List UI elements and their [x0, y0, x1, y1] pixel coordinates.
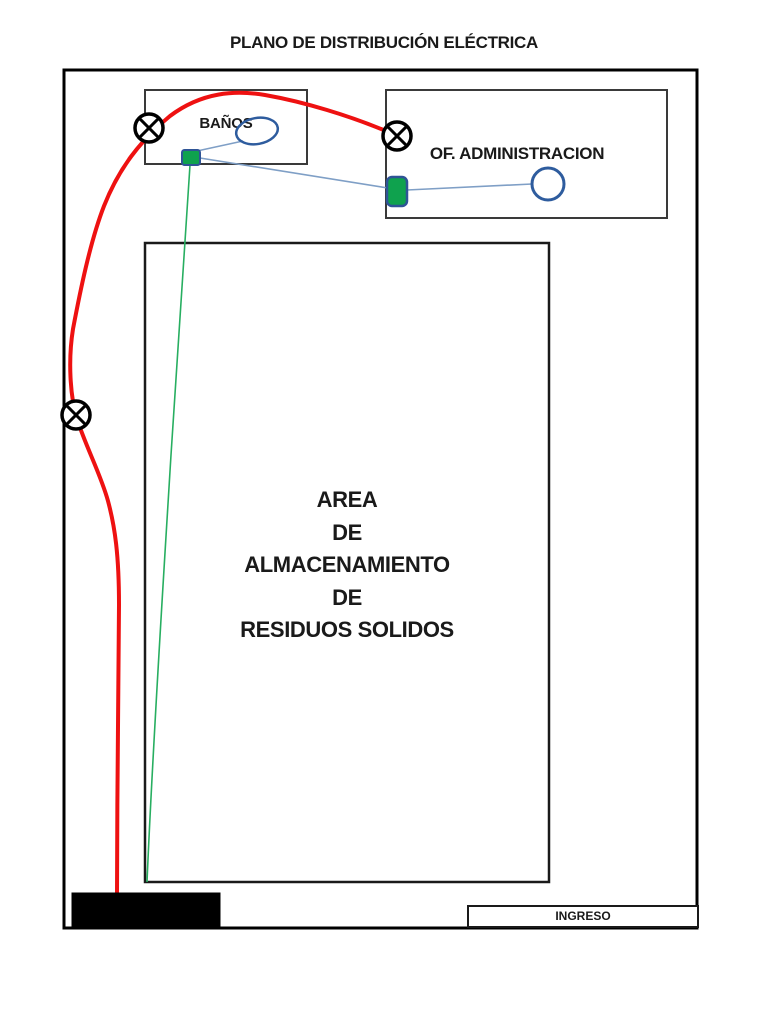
- main-panel: [72, 893, 220, 927]
- light-cable-admin: [407, 184, 532, 190]
- lamp-icon-wall: [62, 401, 90, 429]
- area-label-line: RESIDUOS SOLIDOS: [145, 614, 549, 647]
- area-label-line: ALMACENAMIENTO: [145, 549, 549, 582]
- room-label-administracion: OF. ADMINISTRACION: [386, 145, 648, 163]
- area-label-line: AREA: [145, 484, 549, 517]
- light-cable-banos: [197, 141, 243, 151]
- page-title: PLANO DE DISTRIBUCIÓN ELÉCTRICA: [0, 33, 768, 53]
- switch-icon-admin: [387, 177, 407, 206]
- room-label-banos: BAÑOS: [145, 116, 307, 132]
- area-label-line: DE: [145, 582, 549, 615]
- room-label-almacenamiento: AREA DE ALMACENAMIENTO DE RESIDUOS SOLID…: [145, 484, 549, 647]
- room-label-ingreso: INGRESO: [468, 906, 698, 927]
- area-label-line: DE: [145, 517, 549, 550]
- light-cable-link: [200, 158, 388, 188]
- switch-icon-banos: [182, 150, 200, 165]
